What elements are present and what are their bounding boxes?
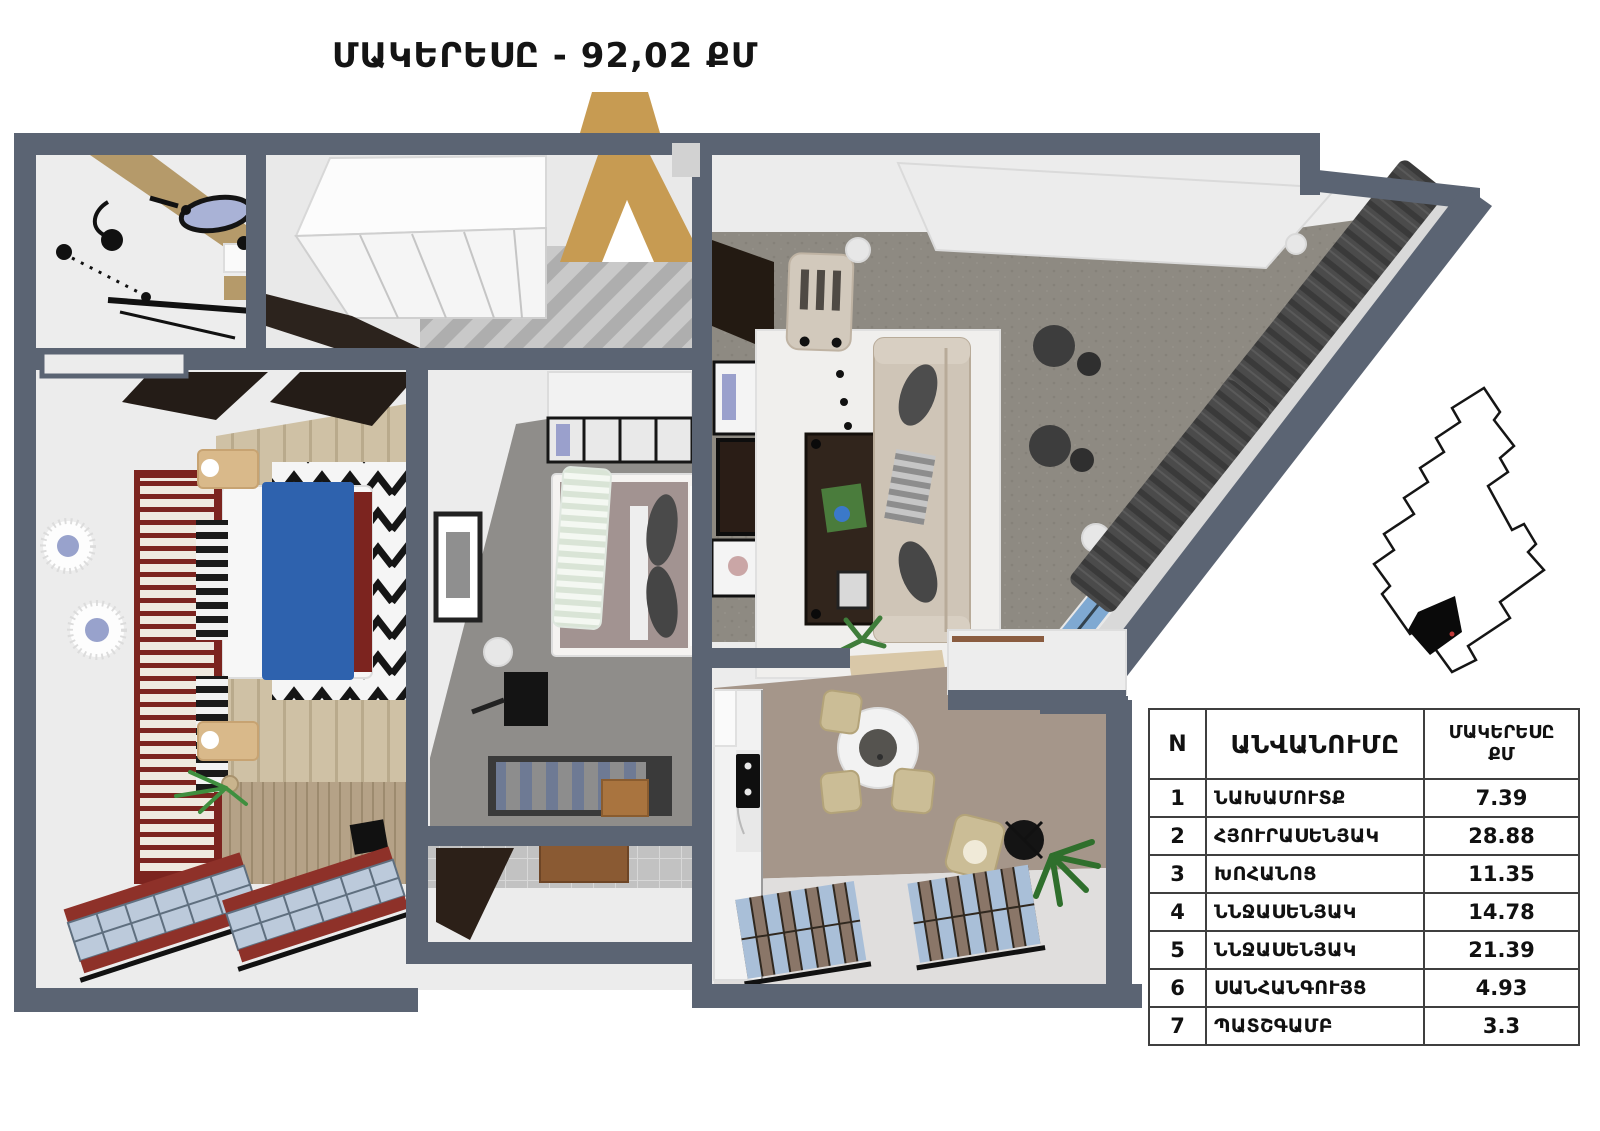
room-number-cell: 4	[1149, 893, 1206, 931]
nightstand	[198, 722, 258, 760]
room-number-cell: 2	[1149, 817, 1206, 855]
room-number-cell: 6	[1149, 969, 1206, 1007]
vanity	[540, 844, 628, 882]
striped-cushion	[196, 520, 228, 640]
ceiling-light	[846, 238, 870, 262]
key-plan	[1374, 388, 1544, 672]
page: ՄԱԿԵՐԵՍԸ - 92,02 ՔՄ	[0, 0, 1600, 1131]
kitchen-living-divider	[948, 630, 1126, 710]
room-name-cell: ՊԱՏՇԳԱՄԲ	[1206, 1007, 1424, 1045]
hall-wardrobe	[296, 156, 546, 318]
room-area-cell: 11.35	[1424, 855, 1579, 893]
black-chair	[1004, 820, 1044, 860]
table-row: 2 ՀՅՈՒՐԱՍԵՆՅԱԿ 28.88	[1149, 817, 1579, 855]
table-row: 4 ՆՆՋԱՍԵՆՅԱԿ 14.78	[1149, 893, 1579, 931]
ceiling-light	[1286, 234, 1306, 254]
wall-picture	[436, 514, 480, 620]
room-number-cell: 1	[1149, 779, 1206, 817]
room-name-cell: ՀՅՈՒՐԱՍԵՆՅԱԿ	[1206, 817, 1424, 855]
hanging-towel	[552, 467, 611, 630]
round-rug	[85, 618, 109, 642]
chair-seat	[963, 840, 987, 864]
table-row: 6 ՍԱՆՀԱՆԳՈՒՅՑ 4.93	[1149, 969, 1579, 1007]
entrance-door-top	[580, 92, 660, 133]
room-bathroom	[36, 155, 253, 353]
room-name-cell: ԽՈՀԱՆՈՑ	[1206, 855, 1424, 893]
room-name-cell: ՆՆՋԱՍԵՆՅԱԿ	[1206, 931, 1424, 969]
room-area-cell: 21.39	[1424, 931, 1579, 969]
room-area-cell: 3.3	[1424, 1007, 1579, 1045]
room-name-cell: ՍԱՆՀԱՆԳՈՒՅՑ	[1206, 969, 1424, 1007]
bedroom-rug	[488, 756, 672, 816]
room-number-cell: 3	[1149, 855, 1206, 893]
wardrobe	[548, 372, 692, 462]
room-entrance-hall	[266, 155, 704, 348]
room-number-cell: 7	[1149, 1007, 1206, 1045]
room-name-cell: ՆԱԽԱՄՈՒՏՔ	[1206, 779, 1424, 817]
room-area-cell: 14.78	[1424, 893, 1579, 931]
header-area: ՄԱԿԵՐԵՍԸ ՔՄ	[1424, 709, 1579, 779]
column	[672, 143, 700, 177]
nightstand	[198, 450, 258, 488]
header-number: N	[1149, 709, 1206, 779]
room-area-cell: 4.93	[1424, 969, 1579, 1007]
round-rug	[57, 535, 79, 557]
table-row: 5 ՆՆՋԱՍԵՆՅԱԿ 21.39	[1149, 931, 1579, 969]
area-table: N ԱՆՎԱՆՈՒՄԸ ՄԱԿԵՐԵՍԸ ՔՄ 1 ՆԱԽԱՄՈՒՏՔ 7.39…	[1148, 708, 1580, 1046]
table-row: 1 ՆԱԽԱՄՈՒՏՔ 7.39	[1149, 779, 1579, 817]
table-header-row: N ԱՆՎԱՆՈՒՄԸ ՄԱԿԵՐԵՍԸ ՔՄ	[1149, 709, 1579, 779]
armchair	[786, 253, 853, 351]
room-area-cell: 7.39	[1424, 779, 1579, 817]
bath-door-niche	[42, 352, 186, 376]
room-area-cell: 28.88	[1424, 817, 1579, 855]
cooktop	[736, 754, 760, 808]
table-row: 3 ԽՈՀԱՆՈՑ 11.35	[1149, 855, 1579, 893]
table-row: 7 ՊԱՏՇԳԱՄԲ 3.3	[1149, 1007, 1579, 1045]
header-name: ԱՆՎԱՆՈՒՄԸ	[1206, 709, 1424, 779]
sofa	[874, 338, 970, 642]
room-number-cell: 5	[1149, 931, 1206, 969]
ceiling-light	[484, 638, 512, 666]
room-name-cell: ՆՆՋԱՍԵՆՅԱԿ	[1206, 893, 1424, 931]
